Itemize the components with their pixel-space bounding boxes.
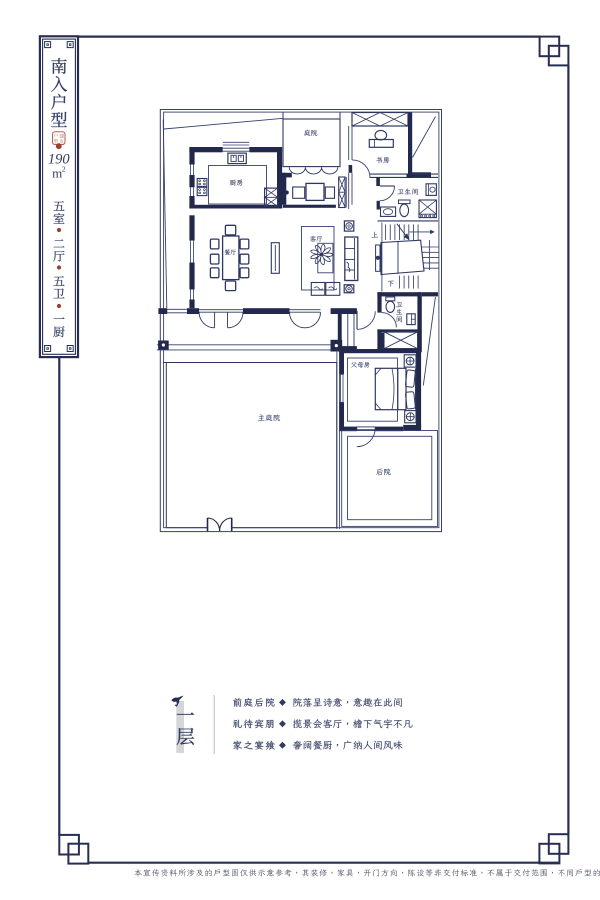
- svg-text:m: m: [52, 166, 62, 181]
- svg-text:2: 2: [62, 165, 66, 174]
